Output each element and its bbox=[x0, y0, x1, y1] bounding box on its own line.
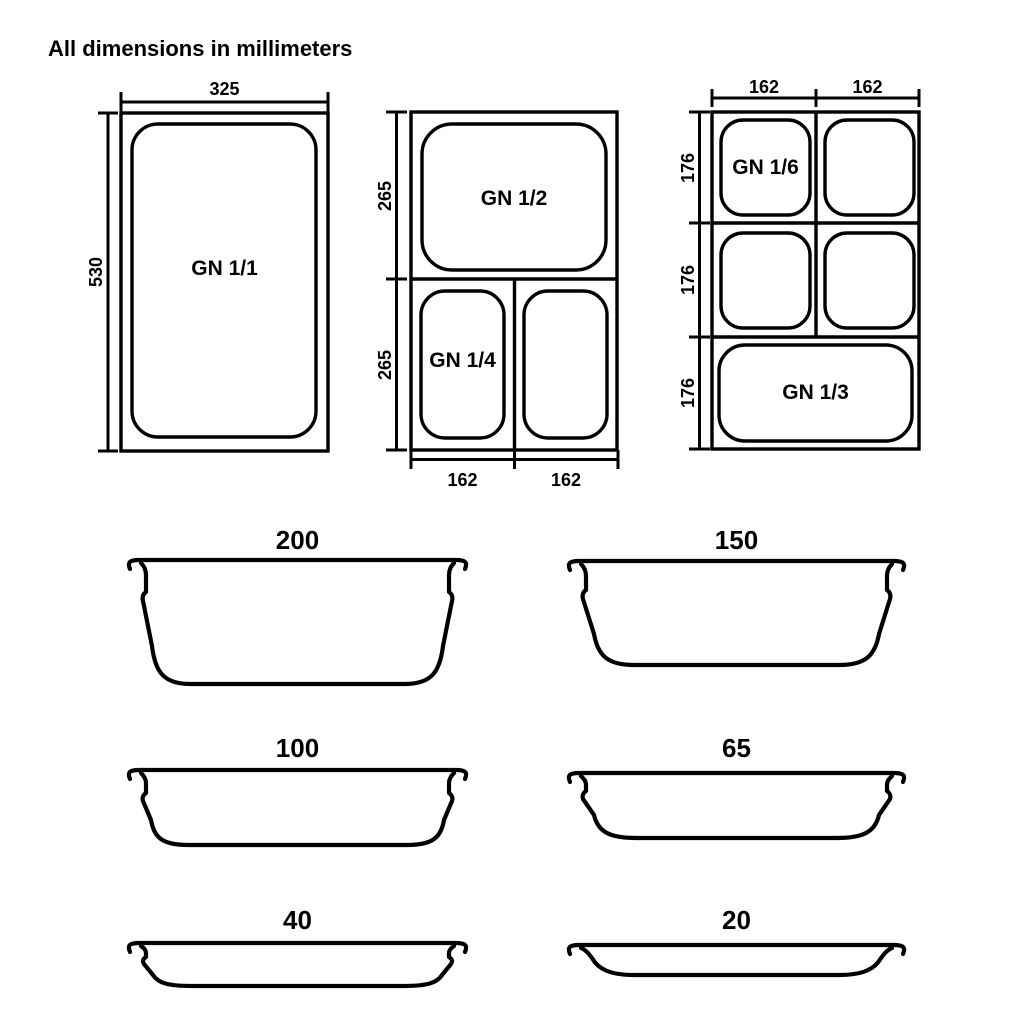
depth-profile-200: 200 bbox=[129, 525, 466, 684]
depth-profile-40: 40 bbox=[129, 905, 466, 986]
depth-100-label: 100 bbox=[276, 733, 319, 763]
top-view-gn-sixth-third: 162 162 176 176 176 GN 1/6 GN 1/3 bbox=[678, 77, 919, 449]
depth-100-rim bbox=[129, 770, 466, 779]
depth-20-body bbox=[581, 948, 892, 975]
depth-40-body bbox=[141, 946, 454, 986]
depth-profile-150: 150 bbox=[569, 525, 904, 665]
gn11-label: GN 1/1 bbox=[191, 257, 258, 280]
depth-150-body bbox=[581, 564, 892, 665]
depth-65-body bbox=[581, 776, 892, 838]
depth-65-label: 65 bbox=[722, 733, 751, 763]
depth-40-rim bbox=[129, 943, 466, 952]
depth-profile-20: 20 bbox=[569, 905, 904, 975]
gn-third-dividers bbox=[712, 112, 919, 337]
depth-200-body bbox=[141, 563, 454, 684]
gn-sixth-label: GN 1/6 bbox=[732, 156, 799, 179]
depth-20-rim bbox=[569, 945, 904, 954]
gn11-pan-outline bbox=[132, 124, 316, 437]
depth-profile-65: 65 bbox=[569, 733, 904, 838]
gn-half-dim-left-label: 162 bbox=[447, 470, 477, 490]
gn-sixth-pan-outline-4 bbox=[825, 233, 914, 328]
depth-150-rim bbox=[569, 561, 904, 570]
gn-quarter-pan-outline-right bbox=[524, 291, 607, 438]
gn-quarter-label: GN 1/4 bbox=[429, 349, 496, 372]
gn-sixth-pan-outline-3 bbox=[721, 233, 810, 328]
gn-half-dim-top-label: 265 bbox=[375, 181, 395, 211]
gn-half-height-dimension-line bbox=[386, 112, 407, 450]
gn-half-dim-right-label: 162 bbox=[551, 470, 581, 490]
gn-sixth-pan-outline-2 bbox=[825, 120, 914, 215]
depth-profile-100: 100 bbox=[129, 733, 466, 845]
gn-third-dim-row1-label: 176 bbox=[678, 153, 698, 183]
depth-100-body bbox=[141, 773, 454, 845]
diagram-svg: All dimensions in millimeters 325 530 GN… bbox=[0, 0, 1024, 1024]
gn-third-dim-col-left-label: 162 bbox=[749, 77, 779, 97]
depth-65-rim bbox=[569, 773, 904, 782]
depth-200-rim bbox=[129, 560, 466, 569]
gn-half-width-dimension-line bbox=[411, 450, 618, 469]
depth-40-label: 40 bbox=[283, 905, 312, 935]
gn11-width-dim-label: 325 bbox=[209, 79, 239, 99]
gn11-outer-rect bbox=[121, 113, 328, 451]
gn-third-dim-row2-label: 176 bbox=[678, 265, 698, 295]
gn-third-dim-row3-label: 176 bbox=[678, 378, 698, 408]
gn-third-dim-col-right-label: 162 bbox=[852, 77, 882, 97]
gn-half-label: GN 1/2 bbox=[481, 187, 548, 210]
top-view-gn-half-quarter: 265 265 162 162 GN 1/2 GN 1/4 bbox=[375, 112, 618, 490]
gn-third-label: GN 1/3 bbox=[782, 381, 849, 404]
top-view-gn11: 325 530 GN 1/1 bbox=[86, 79, 328, 451]
gn-pan-dimension-diagram: All dimensions in millimeters 325 530 GN… bbox=[0, 0, 1024, 1024]
depth-150-label: 150 bbox=[715, 525, 758, 555]
depth-20-label: 20 bbox=[722, 905, 751, 935]
gn-third-width-dimension-line bbox=[712, 89, 919, 107]
page-title: All dimensions in millimeters bbox=[48, 36, 352, 61]
gn11-height-dim-label: 530 bbox=[86, 257, 106, 287]
gn-half-dim-bottom-label: 265 bbox=[375, 350, 395, 380]
depth-200-label: 200 bbox=[276, 525, 319, 555]
